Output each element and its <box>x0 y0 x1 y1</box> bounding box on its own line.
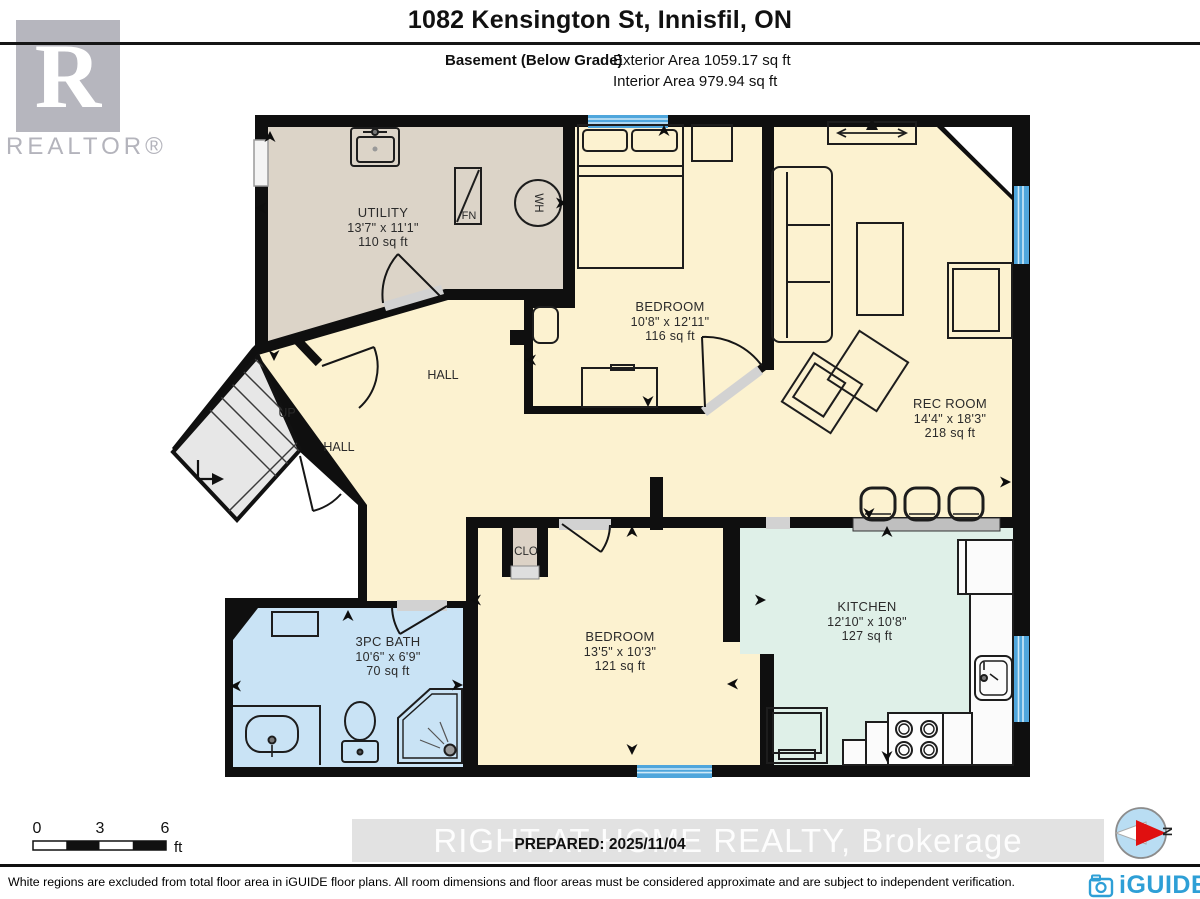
stairs-up-label: UP <box>278 406 295 420</box>
scale-bar <box>33 841 166 850</box>
room-label-hall-small: HALL <box>323 440 354 454</box>
iguide-camera-icon <box>1087 874 1115 898</box>
interior-area: Interior Area 979.94 sq ft <box>613 73 777 90</box>
prepared-date: PREPARED: 2025/11/04 <box>514 836 685 854</box>
realtor-logo-icon: R <box>16 20 120 132</box>
footer-disclaimer: White regions are excluded from total fl… <box>8 875 1015 889</box>
room-label-rec-room: REC ROOM 14'4" x 18'3" 218 sq ft <box>913 397 987 441</box>
scale-tick-6: 6 <box>161 820 170 838</box>
title-divider <box>0 42 1200 45</box>
water-heater-label: WH <box>532 193 544 212</box>
room-label-utility: UTILITY 13'7" x 11'1" 110 sq ft <box>347 206 419 250</box>
window-bedroom-bottom <box>637 765 712 778</box>
closet-label: CLO <box>514 546 538 558</box>
scale-tick-0: 0 <box>33 820 42 838</box>
realtor-logo-letter: R <box>35 26 101 126</box>
room-label-bath: 3PC BATH 10'6" x 6'9" 70 sq ft <box>355 635 420 679</box>
floor-plan-page: 1082 Kensington St, Innisfil, ON Basemen… <box>0 0 1200 899</box>
window-utility-left <box>254 140 268 186</box>
page-title: 1082 Kensington St, Innisfil, ON <box>0 6 1200 35</box>
room-label-hall-main: HALL <box>427 368 458 382</box>
window-kitchen-right <box>1014 636 1029 722</box>
furnace-label: FN <box>462 210 477 222</box>
footer-divider <box>0 864 1200 867</box>
scale-tick-3: 3 <box>96 820 105 838</box>
floor-plan-canvas <box>0 0 1200 899</box>
realtor-wordmark: REALTOR® <box>6 133 167 161</box>
exterior-area: Exterior Area 1059.17 sq ft <box>613 52 791 69</box>
compass-icon <box>1116 808 1166 858</box>
stove-icon <box>888 713 943 765</box>
compass-north-label: N <box>1160 827 1175 836</box>
window-bedroom-top <box>588 115 668 128</box>
room-label-bedroom-top: BEDROOM 10'8" x 12'11" 116 sq ft <box>631 300 710 344</box>
watermark-band: RIGHT AT HOME REALTY, Brokerage <box>352 819 1104 862</box>
window-rec-right <box>1014 186 1029 264</box>
room-label-bedroom-bottom: BEDROOM 13'5" x 10'3" 121 sq ft <box>584 630 656 674</box>
iguide-wordmark: iGUIDE <box>1119 871 1200 899</box>
floor-label: Basement (Below Grade) <box>445 52 623 69</box>
scale-unit: ft <box>174 839 182 856</box>
iguide-logo: iGUIDE <box>1087 871 1200 899</box>
room-label-kitchen: KITCHEN 12'10" x 10'8" 127 sq ft <box>827 600 907 644</box>
